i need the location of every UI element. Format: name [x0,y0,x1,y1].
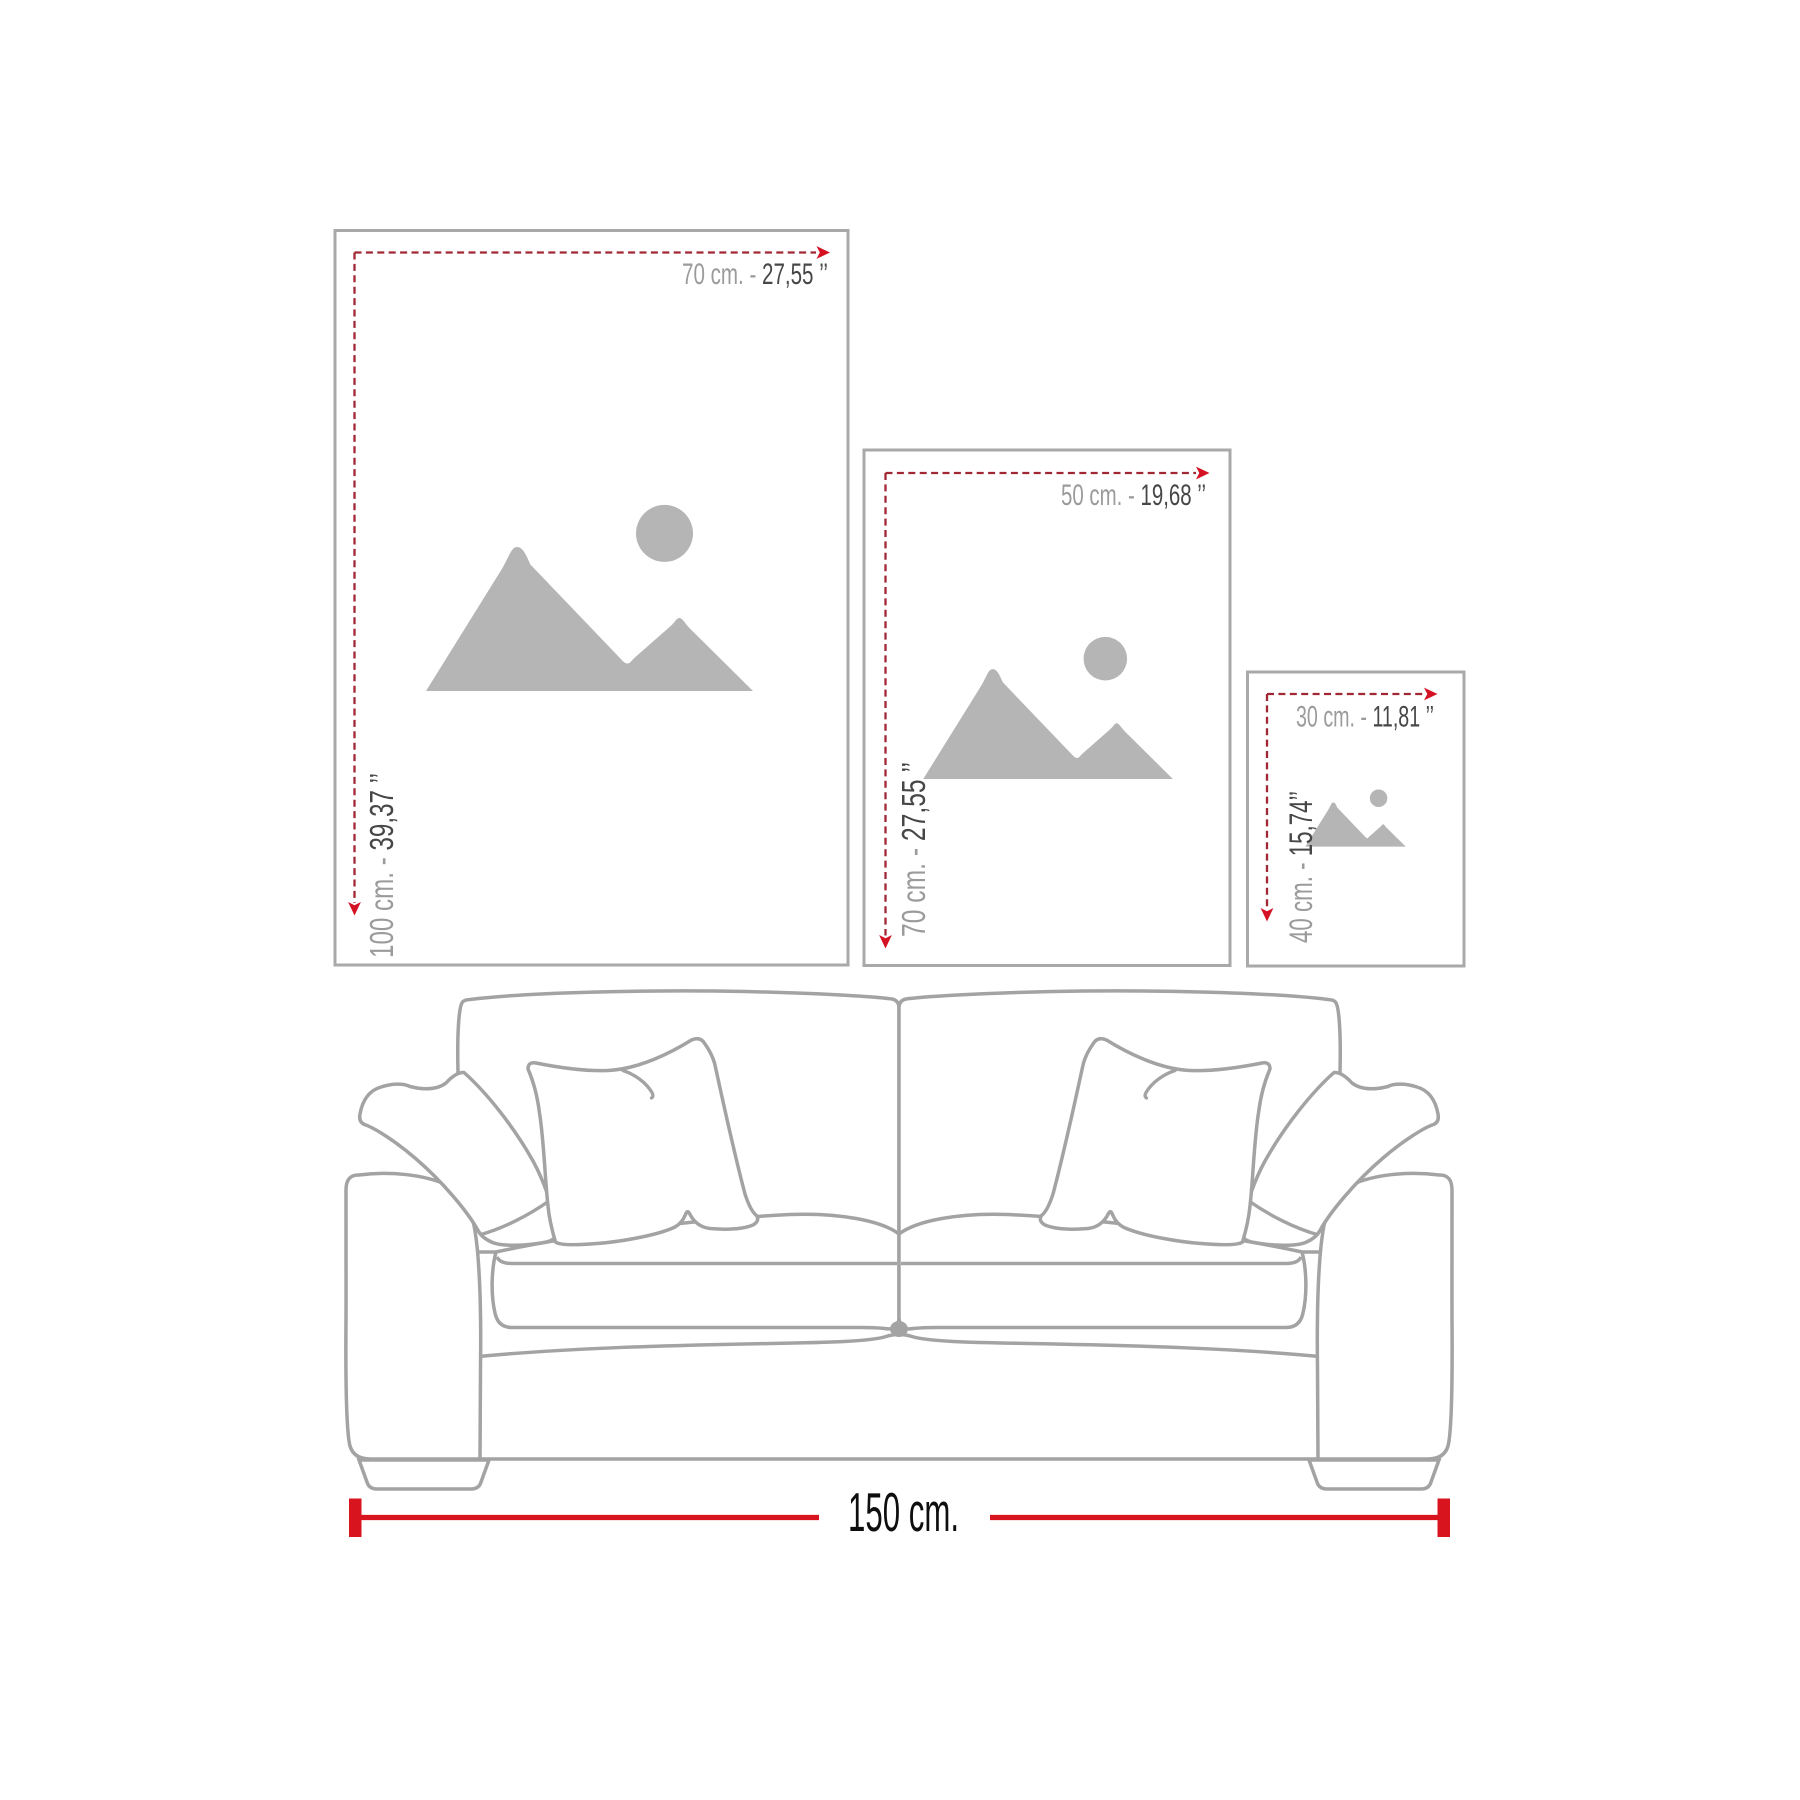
svg-text:70 cm. - 27,55 ’’: 70 cm. - 27,55 ’’ [682,258,828,291]
svg-text:70 cm. - 27,55 ’’: 70 cm. - 27,55 ’’ [895,762,932,937]
svg-text:30 cm. - 11,81 ’’: 30 cm. - 11,81 ’’ [1296,701,1434,734]
svg-text:150 cm.: 150 cm. [848,1481,959,1543]
svg-text:40 cm. - 15,74’’: 40 cm. - 15,74’’ [1283,791,1319,943]
svg-text:100 cm. - 39,37 ’’: 100 cm. - 39,37 ’’ [363,773,400,958]
svg-text:50 cm. - 19,68 ’’: 50 cm. - 19,68 ’’ [1061,479,1206,512]
